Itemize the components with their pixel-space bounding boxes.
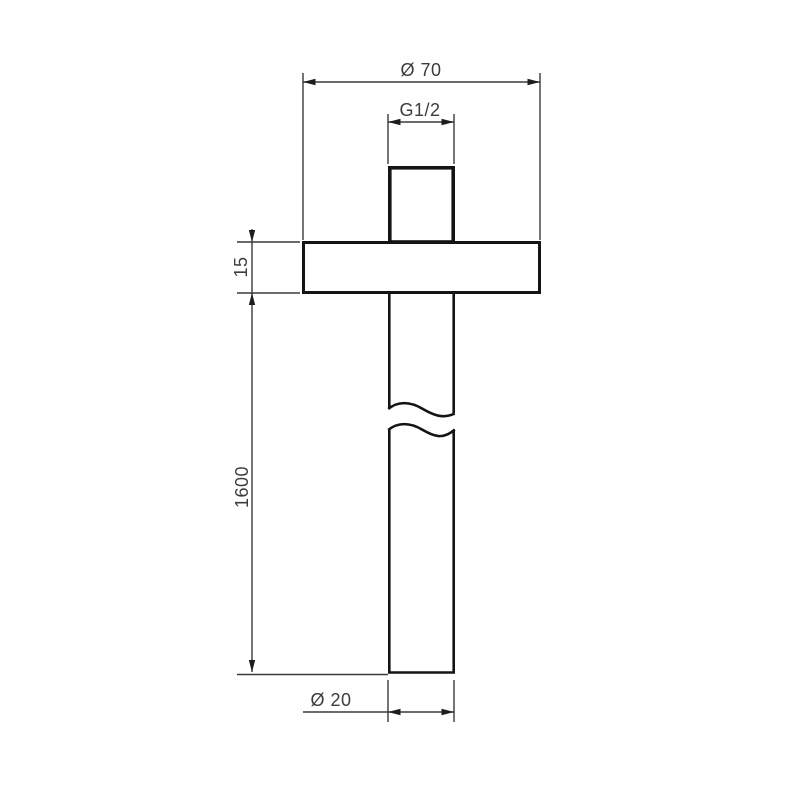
- arrowhead-left: [388, 709, 401, 715]
- arrowhead-down: [249, 230, 255, 242]
- shower-arm-technical-drawing: Ø 70 G1/2 15 1600: [0, 0, 800, 800]
- drawing-canvas: Ø 70 G1/2 15 1600: [0, 0, 800, 800]
- pipe-break-wave-upper: [388, 403, 455, 416]
- length-dimension-label: 1600: [232, 466, 252, 508]
- arrowhead-right: [528, 79, 541, 85]
- part-outline: [304, 168, 540, 673]
- flange-thickness-dimension-label: 15: [231, 256, 251, 277]
- left-vertical-dimensions: 15 1600: [231, 229, 388, 675]
- thread-dimension: G1/2: [388, 100, 454, 164]
- arrowhead-right: [442, 119, 455, 125]
- pipe-diameter-dimension-label: Ø 20: [310, 690, 351, 710]
- arrowhead-right: [442, 709, 455, 715]
- pipe-break-wave-lower: [388, 424, 455, 436]
- flange-diameter-dimension: Ø 70: [303, 60, 540, 240]
- arrowhead-down: [249, 660, 255, 672]
- thread-nipple-outline: [390, 168, 453, 242]
- thread-dimension-label: G1/2: [399, 100, 440, 120]
- arrowhead-up: [249, 293, 255, 305]
- flange-diameter-dimension-label: Ø 70: [400, 60, 441, 80]
- pipe-diameter-dimension: Ø 20: [303, 680, 454, 722]
- flange-outline: [304, 243, 540, 293]
- arrowhead-left: [303, 79, 316, 85]
